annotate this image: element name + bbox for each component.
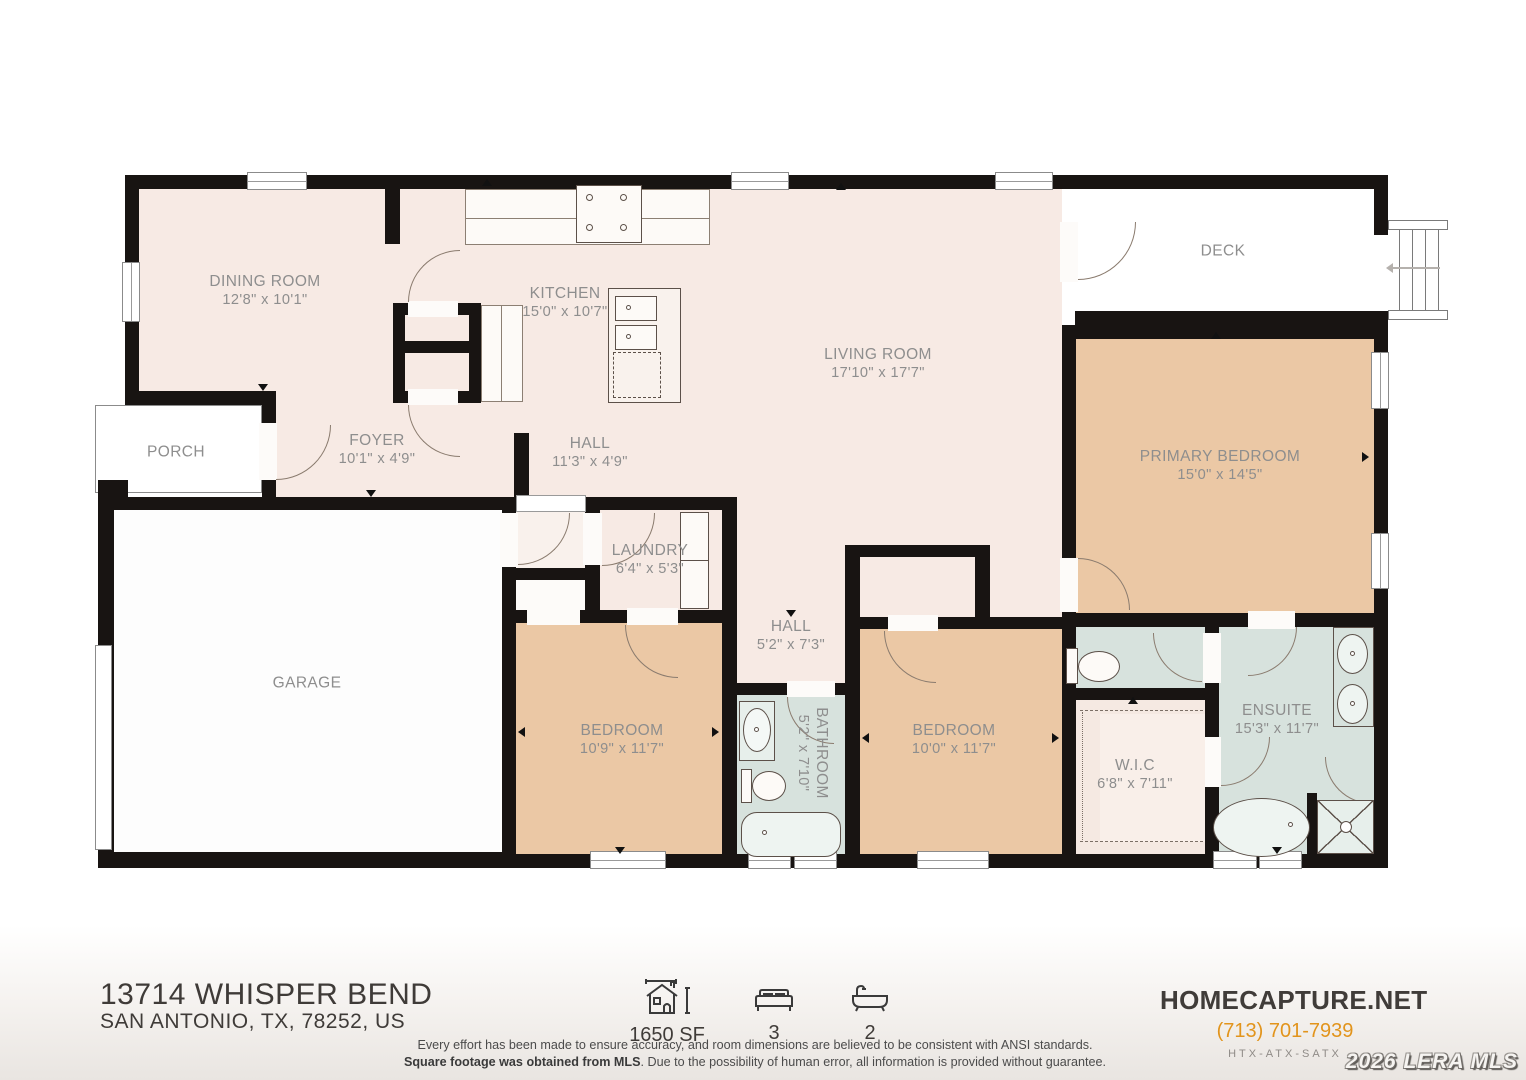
- ensuite-bathtub: [1213, 798, 1310, 857]
- room-dims: 15'0" x 14'5": [1140, 467, 1300, 485]
- room-name: LAUNDRY: [612, 542, 689, 561]
- stair-tread: [1399, 230, 1400, 310]
- stair-tread: [1438, 230, 1439, 310]
- window: [247, 172, 307, 190]
- door-gap: [1203, 633, 1221, 683]
- address-line1: 13714 WHISPER BEND: [100, 978, 432, 1012]
- room-name: DINING ROOM: [209, 273, 320, 292]
- dimension-marker: [862, 733, 869, 743]
- bed-icon: [754, 982, 794, 1014]
- window: [1371, 533, 1389, 589]
- dimension-marker: [482, 179, 492, 186]
- door-gap: [1060, 558, 1078, 612]
- room-name: FOYER: [339, 432, 416, 451]
- bathtub: [741, 812, 841, 857]
- pantry-door-gap: [408, 389, 458, 405]
- stair-direction-arrow: [1392, 267, 1440, 269]
- room-dims: 5'2" x 7'10": [794, 707, 812, 799]
- window: [995, 172, 1053, 190]
- window: [1371, 352, 1389, 409]
- shower: [1317, 800, 1374, 854]
- door-gap: [500, 513, 518, 567]
- wall: [1076, 688, 1205, 700]
- room-dims: 15'0" x 10'7": [522, 304, 607, 322]
- door-gap: [627, 608, 678, 625]
- floor-plan-page: DINING ROOM 12'8" x 10'1" KITCHEN 15'0" …: [0, 0, 1526, 1080]
- pantry-door-gap: [408, 301, 458, 317]
- wall: [845, 617, 1062, 629]
- room-dims: 11'3" x 4'9": [552, 454, 628, 472]
- dimension-marker: [1211, 332, 1221, 339]
- room-dims: 6'8" x 7'11": [1097, 776, 1173, 794]
- mls-watermark: 2026 LERA MLS: [1346, 1050, 1518, 1074]
- wall: [585, 497, 737, 510]
- disclaimer-rest: . Due to the possibility of human error,…: [640, 1055, 1106, 1069]
- sink-drain: [626, 305, 631, 310]
- room-label-deck: DECK: [1201, 243, 1246, 262]
- brand-phone: (713) 701-7939: [1160, 1020, 1410, 1043]
- island-sink: [615, 325, 657, 350]
- room-label-hall2: HALL 5'2" x 7'3": [757, 618, 825, 654]
- room-label-living: LIVING ROOM 17'10" x 17'7": [824, 346, 932, 382]
- room-name: PRIMARY BEDROOM: [1140, 448, 1300, 467]
- room-dims: 10'0" x 11'7": [912, 741, 996, 759]
- room-label-ensuite: ENSUITE 15'3" x 11'7": [1235, 702, 1319, 738]
- room-dims: 6'4" x 5'3": [612, 561, 689, 579]
- dimension-marker: [836, 183, 846, 190]
- wall: [514, 433, 529, 499]
- closet-rod: [1080, 710, 1203, 711]
- wall: [98, 852, 510, 868]
- disclaimer-line2: Square footage was obtained from MLS. Du…: [205, 1055, 1305, 1069]
- room-label-kitchen: KITCHEN 15'0" x 10'7": [522, 285, 607, 321]
- room-label-primary: PRIMARY BEDROOM 15'0" x 14'5": [1140, 448, 1300, 484]
- room-name: LIVING ROOM: [824, 346, 932, 365]
- wall: [1062, 613, 1388, 627]
- cased-opening: [516, 495, 586, 512]
- room-label-bedroom1: BEDROOM 10'9" x 11'7": [580, 722, 664, 758]
- sink-drain: [1350, 651, 1355, 656]
- stove: [576, 185, 642, 243]
- wall: [1062, 325, 1388, 339]
- room-name: PORCH: [147, 444, 205, 463]
- stat-area: 1650 SF: [627, 978, 707, 1047]
- door-gap: [1203, 737, 1221, 787]
- area-icon: [643, 978, 691, 1016]
- deck-stairs-top-rail: [1388, 220, 1448, 230]
- room-name: BATHROOM: [811, 707, 830, 799]
- room-label-dining: DINING ROOM 12'8" x 10'1": [209, 273, 320, 309]
- sink-drain: [1350, 701, 1355, 706]
- dimension-marker: [786, 610, 796, 617]
- dimension-marker: [366, 490, 376, 497]
- wall: [845, 545, 860, 868]
- toilet-bowl: [752, 771, 786, 801]
- room-name: HALL: [757, 618, 825, 637]
- toilet-tank: [741, 769, 752, 803]
- room-name: BEDROOM: [580, 722, 664, 741]
- sink-drain: [626, 334, 631, 339]
- stat-beds: 3: [742, 982, 806, 1045]
- toilet-bowl: [1078, 651, 1120, 682]
- wall: [722, 497, 737, 868]
- room-dims: 12'8" x 10'1": [209, 292, 320, 310]
- door-gap: [583, 513, 602, 565]
- window: [122, 262, 140, 322]
- bath-icon: [850, 982, 890, 1014]
- stove-burner: [586, 224, 593, 231]
- room-label-garage: GARAGE: [273, 675, 342, 694]
- sink-drain: [754, 727, 759, 732]
- room-label-porch: PORCH: [147, 444, 205, 463]
- room-dims: 17'10" x 17'7": [824, 365, 932, 383]
- room-name: HALL: [552, 435, 628, 454]
- island-sink: [615, 296, 657, 321]
- wall: [1075, 175, 1388, 189]
- stove-burner: [620, 194, 627, 201]
- door-arc-deck: [1078, 222, 1136, 280]
- closet-rod: [1082, 712, 1083, 842]
- room-label-hall1: HALL 11'3" x 4'9": [552, 435, 628, 471]
- room-label-bedroom2: BEDROOM 10'0" x 11'7": [912, 722, 996, 758]
- dimension-marker: [1362, 452, 1369, 462]
- wall: [125, 391, 270, 405]
- closet-opening: [527, 608, 580, 625]
- room-label-laundry: LAUNDRY 6'4" x 5'3": [612, 542, 689, 578]
- stair-tread: [1412, 230, 1413, 310]
- window: [590, 851, 666, 869]
- wall: [1374, 175, 1388, 235]
- dimension-marker: [615, 847, 625, 854]
- room-name: KITCHEN: [522, 285, 607, 304]
- wall: [845, 545, 990, 557]
- tub-drain: [762, 830, 767, 835]
- stair-arrow-head: [1386, 263, 1393, 273]
- address-line2: SAN ANTONIO, TX, 78252, US: [100, 1010, 405, 1034]
- room-dims: 5'2" x 7'3": [757, 637, 825, 655]
- wall: [98, 480, 128, 497]
- refrigerator-divider: [501, 306, 502, 401]
- room-name: W.I.C: [1097, 757, 1173, 776]
- wall: [516, 568, 590, 580]
- dimension-marker: [712, 727, 719, 737]
- room-label-wic: W.I.C 6'8" x 7'11": [1097, 757, 1173, 793]
- stove-burner: [586, 194, 593, 201]
- tub-drain: [1288, 822, 1293, 827]
- brand-name: HOMECAPTURE.NET: [1160, 985, 1410, 1016]
- room-dims: 10'9" x 11'7": [580, 741, 664, 759]
- brand-block: HOMECAPTURE.NET (713) 701-7939 HTX-ATX-S…: [1160, 985, 1410, 1060]
- wall: [385, 189, 400, 244]
- window: [731, 172, 789, 190]
- disclaimer-bold: Square footage was obtained from MLS: [404, 1055, 641, 1069]
- room-name: ENSUITE: [1235, 702, 1319, 721]
- door-gap: [888, 615, 938, 631]
- door-gap: [259, 423, 277, 480]
- refrigerator: [481, 305, 523, 402]
- door-gap: [787, 681, 835, 697]
- garage-door: [95, 645, 112, 850]
- room-label-bathroom: BATHROOM 5'2" x 7'10": [794, 707, 830, 799]
- pantry-shelf-top: [405, 315, 469, 341]
- window: [917, 851, 989, 869]
- wall: [98, 497, 516, 510]
- toilet-tank: [1066, 648, 1078, 684]
- wall: [1075, 311, 1388, 325]
- dishwasher: [613, 352, 661, 398]
- dimension-marker: [1052, 733, 1059, 743]
- room-label-foyer: FOYER 10'1" x 4'9": [339, 432, 416, 468]
- disclaimer-line1: Every effort has been made to ensure acc…: [205, 1038, 1305, 1052]
- stove-burner: [620, 224, 627, 231]
- room-name: BEDROOM: [912, 722, 996, 741]
- closet-rod: [1080, 841, 1203, 842]
- room-dims: 15'3" x 11'7": [1235, 721, 1319, 739]
- room-name: DECK: [1201, 243, 1246, 262]
- stair-tread: [1425, 230, 1426, 310]
- dimension-marker: [258, 384, 268, 391]
- dimension-marker: [518, 727, 525, 737]
- pantry-shelf-bottom: [405, 353, 469, 391]
- stat-baths: 2: [838, 982, 902, 1045]
- room-dims: 10'1" x 4'9": [339, 451, 416, 469]
- dimension-marker: [1128, 697, 1138, 704]
- floor-closet-bedroom1: [516, 580, 586, 610]
- door-gap: [1060, 222, 1078, 282]
- deck-stairs-bottom-rail: [1388, 310, 1448, 320]
- dimension-marker: [1272, 847, 1282, 854]
- room-name: GARAGE: [273, 675, 342, 694]
